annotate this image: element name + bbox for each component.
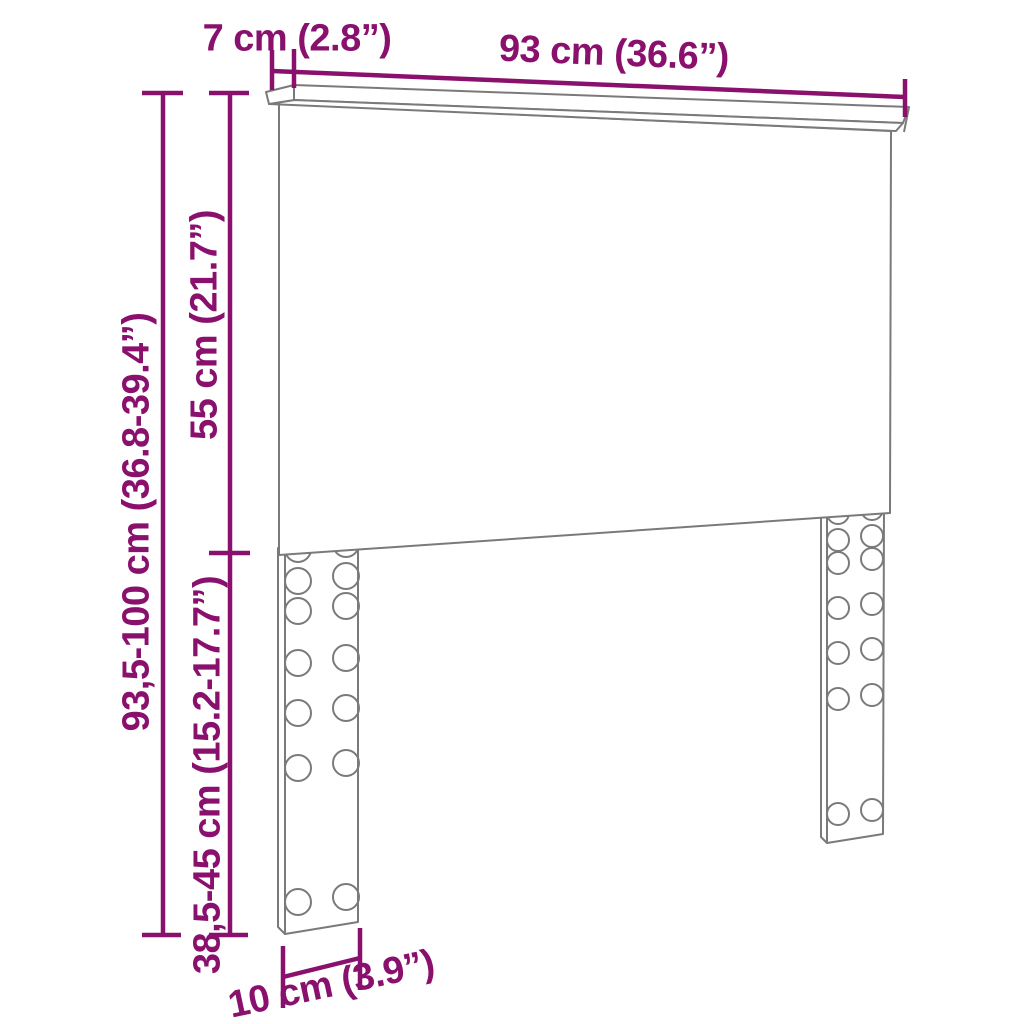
left-leg-side-face [278,548,285,934]
overall-height-label: 93,5-100 cm (36.8-39.4”) [115,313,157,732]
right-leg [821,498,884,843]
headboard-panel [279,104,891,555]
furniture-outline [266,85,909,934]
panel-height-label: 55 cm (21.7”) [183,210,225,440]
leg-height-label: 38,5-45 cm (15.2-17.7”) [186,576,228,974]
left-leg [278,531,359,934]
diagram-canvas: 7 cm (2.8”) 93 cm (36.6”) 55 cm (21.7”) … [0,0,1024,1024]
headboard-dimension-diagram: 7 cm (2.8”) 93 cm (36.6”) 55 cm (21.7”) … [0,0,1024,1024]
shelf-depth-label: 7 cm (2.8”) [203,17,392,59]
left-leg-front-face [285,548,358,934]
right-leg-front-face [827,505,884,843]
total-width-label: 93 cm (36.6”) [498,28,730,79]
foot-width-label: 10 cm (3.9”) [224,942,438,1024]
